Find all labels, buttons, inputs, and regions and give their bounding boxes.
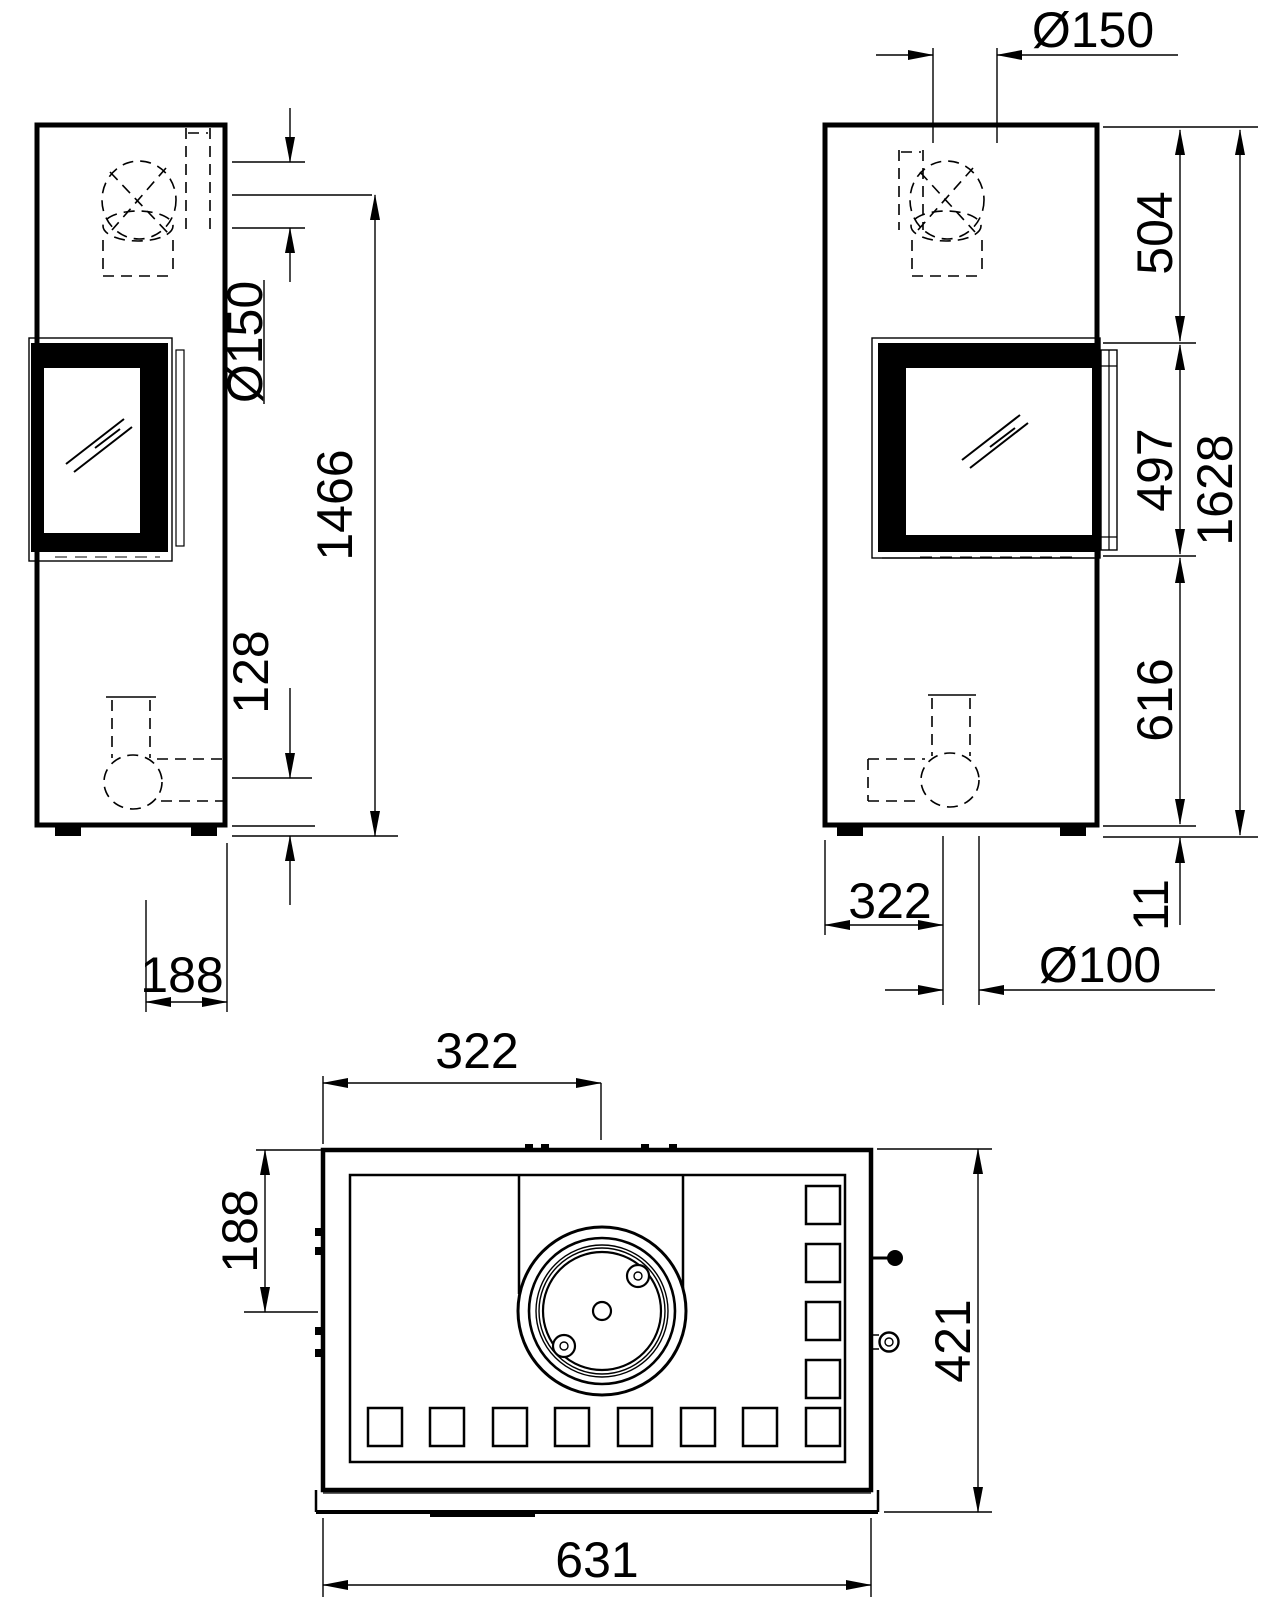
knob-head [887, 1250, 903, 1266]
technical-drawing-page: Ø150 1466 128 188 [0, 0, 1281, 1603]
dim-label-foot-height: 11 [1123, 879, 1179, 931]
side-view: Ø150 1466 128 188 [29, 108, 398, 1012]
dim-label-flue-offset: 322 [848, 873, 931, 929]
collar-center-hole [593, 1302, 611, 1320]
dim-label-base-depth: 188 [140, 947, 223, 1003]
door-handle-bar-detail [1101, 350, 1117, 550]
front-view: Ø150 504 497 616 11 1628 322 Ø100 [825, 2, 1258, 1005]
dim-label-flue-diameter: Ø150 [217, 281, 273, 403]
stove-body-outline [37, 125, 225, 825]
dim-label-inlet-diameter: Ø100 [1039, 937, 1161, 993]
dim-label-total-height: 1628 [1187, 434, 1243, 545]
stove-body-outline [825, 125, 1097, 825]
dim-label-top-to-window: 504 [1127, 191, 1183, 274]
dim-label-width: 631 [555, 1532, 638, 1588]
dim-label-depth: 421 [925, 1299, 981, 1382]
dim-label-inlet-height: 128 [223, 630, 279, 713]
eyelet-ring [880, 1333, 899, 1352]
door-handle-knob [871, 1250, 903, 1266]
dim-label-flue-depth: 188 [212, 1189, 268, 1272]
top-view: 322 188 421 631 [212, 1023, 992, 1597]
collar-screw-lug [627, 1265, 649, 1287]
collar-screw-lug [553, 1335, 575, 1357]
dim-label-flue-diameter: Ø150 [1032, 2, 1154, 58]
dim-label-flue-offset: 322 [435, 1023, 518, 1079]
dim-label-window-to-floor: 616 [1127, 658, 1183, 741]
stove-drawing-canvas: Ø150 1466 128 188 [0, 0, 1281, 1603]
dim-label-flue-height: 1466 [307, 449, 363, 560]
base-shadow-tab [430, 1512, 535, 1517]
flue-collar [518, 1227, 686, 1395]
dim-label-window-height: 497 [1127, 428, 1183, 511]
lifting-eyelet [871, 1333, 899, 1352]
